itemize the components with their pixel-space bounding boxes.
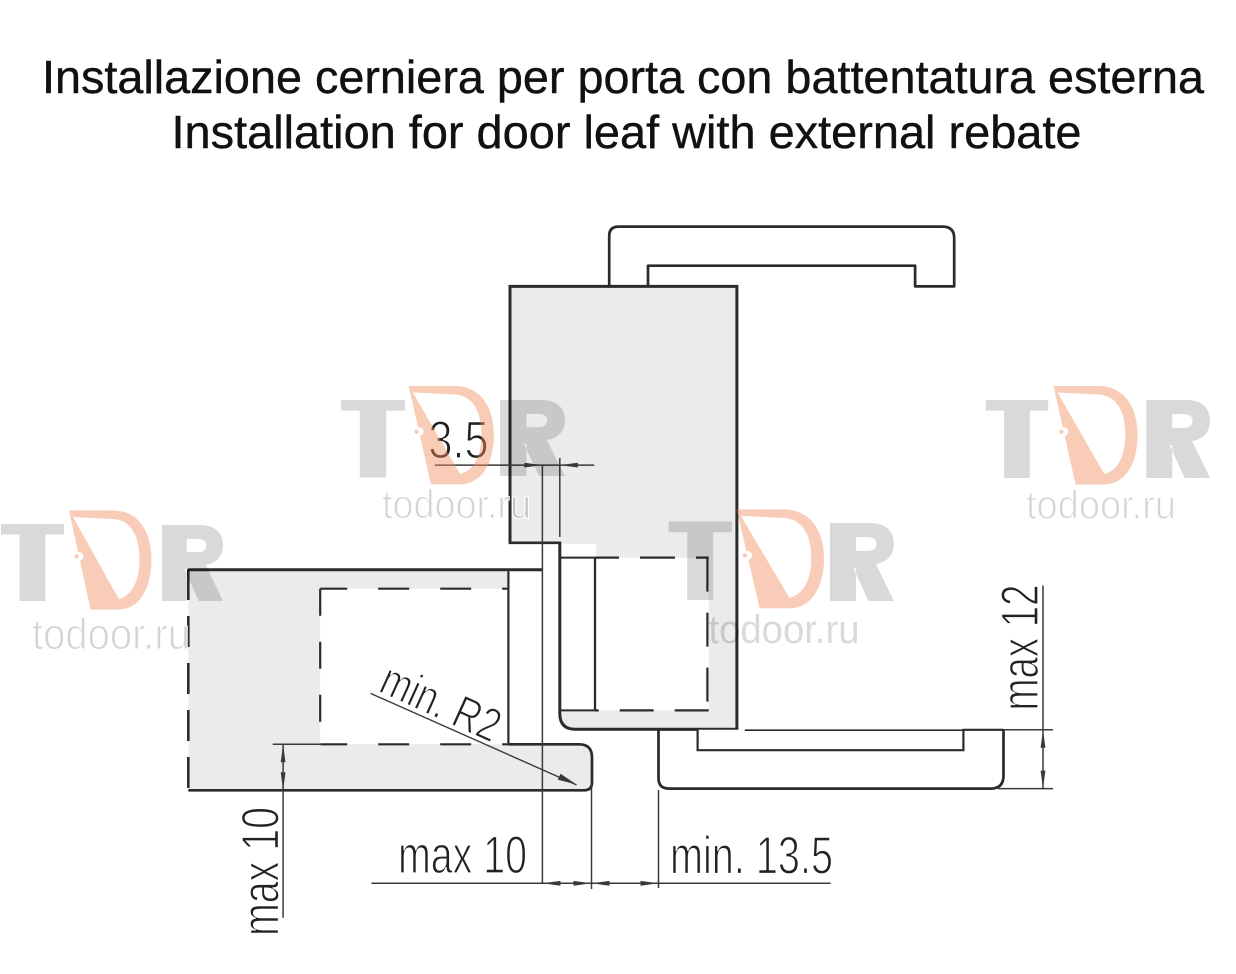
svg-text:todoor.ru: todoor.ru (709, 608, 860, 652)
svg-text:todoor.ru: todoor.ru (382, 483, 531, 527)
svg-text:min. 13.5: min. 13.5 (670, 827, 833, 886)
svg-text:Installazione cerniera per por: Installazione cerniera per porta con bat… (42, 51, 1204, 103)
svg-text:Installation for door leaf wit: Installation for door leaf with external… (172, 106, 1082, 158)
svg-text:todoor.ru: todoor.ru (1026, 484, 1176, 528)
svg-text:max 10: max 10 (398, 826, 527, 885)
svg-text:todoor.ru: todoor.ru (32, 610, 190, 659)
svg-text:max 12: max 12 (991, 585, 1050, 711)
svg-text:max 10: max 10 (231, 807, 290, 936)
